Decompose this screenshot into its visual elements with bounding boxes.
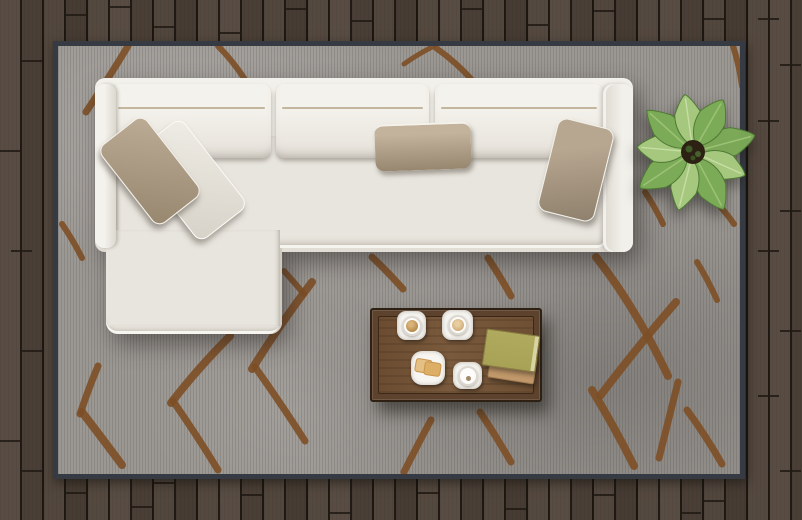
plank-seam — [780, 64, 801, 66]
plank-seam — [780, 210, 801, 212]
plank-seam — [220, 32, 241, 34]
plank-seam — [758, 18, 779, 20]
coffee-cup-saucer-1 — [397, 311, 426, 340]
plank-seam — [758, 395, 779, 397]
latte-liquid — [452, 319, 464, 331]
plank-seam — [594, 10, 615, 12]
plank-seam — [22, 350, 43, 352]
throw-pillow-lumbar-taupe — [374, 121, 472, 171]
snack-plate — [411, 351, 445, 385]
plank-seam — [704, 500, 725, 502]
toast-slice-2 — [423, 361, 442, 377]
plank-seam — [780, 470, 801, 472]
plank-seam — [330, 512, 351, 514]
plank-seam — [22, 60, 43, 62]
plank-seam — [154, 482, 175, 484]
plank-seam — [680, 512, 701, 514]
plank-seam — [132, 506, 153, 508]
potted-plant — [620, 86, 766, 226]
plank-seam — [110, 6, 131, 8]
plank-seam — [758, 250, 779, 252]
plank-seam — [154, 26, 175, 28]
plank-seam — [286, 8, 307, 10]
plank-seam — [352, 20, 373, 22]
plank-seam — [242, 494, 263, 496]
plank-seam — [780, 330, 801, 332]
empty-cup — [458, 366, 478, 386]
chaise-seat-cushion — [108, 230, 280, 326]
plank-seam — [418, 492, 439, 494]
coffee-cup-1 — [402, 316, 422, 336]
plank-seam — [66, 14, 87, 16]
book-green — [482, 328, 541, 372]
plank-seam — [66, 492, 87, 494]
plank-seam — [22, 470, 43, 472]
cup-handle-dot — [466, 376, 471, 381]
plank-seam — [506, 508, 527, 510]
coffee-cup-saucer-2 — [442, 310, 473, 340]
coffee-cup-2 — [448, 315, 468, 335]
plank-seam — [0, 150, 21, 152]
plank-seam — [0, 440, 21, 442]
plank-seam — [11, 250, 32, 252]
plank-seam — [704, 18, 725, 20]
plank-seam — [528, 24, 549, 26]
empty-cup-saucer — [453, 362, 482, 389]
coffee-liquid — [406, 320, 418, 332]
living-room-top-view — [0, 0, 802, 520]
plant-leaves — [632, 93, 759, 216]
plank-seam — [594, 494, 615, 496]
plank-seam — [462, 8, 483, 10]
